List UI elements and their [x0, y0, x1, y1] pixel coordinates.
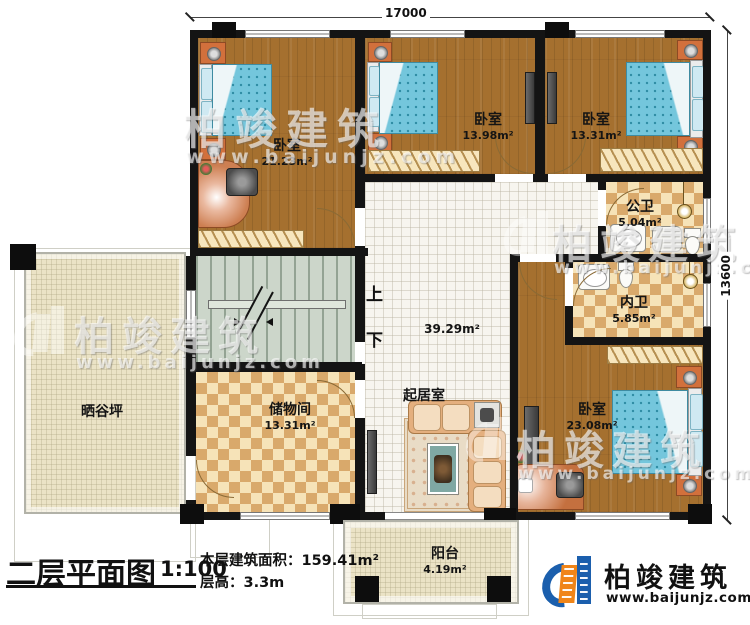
floor-height-line: 层高：3.3m: [200, 571, 284, 592]
column: [688, 504, 712, 524]
table-centerpiece: [434, 455, 452, 483]
room-name: 卧室: [428, 112, 548, 129]
floor-height-value: 3.3m: [244, 575, 285, 591]
room-label-balcony: 阳台 4.19m²: [405, 546, 485, 576]
dimension-top-value: 17000: [382, 6, 430, 20]
wall: [586, 174, 710, 182]
window: [245, 30, 330, 38]
stair-arrow-icon: [266, 318, 273, 326]
room-name: 内卫: [574, 295, 694, 312]
nightstand: [676, 366, 702, 388]
balcony-door-opening: [385, 512, 497, 520]
title-underline: [6, 585, 196, 588]
wall: [565, 306, 573, 337]
watermark-logo-icon: [506, 206, 552, 266]
room-label-living: 起居室: [384, 388, 464, 405]
column: [545, 22, 569, 38]
wall: [533, 174, 548, 182]
wall: [535, 38, 545, 174]
floor-height-label: 层高：: [200, 575, 244, 591]
wall: [186, 256, 196, 290]
room-label-bedroom-top-mid: 卧室 13.98m²: [428, 112, 548, 142]
sofa-cushion: [413, 404, 441, 431]
stairs-up-label: 上: [366, 280, 383, 305]
floor-area-label: 本层建筑面积：: [200, 553, 302, 569]
room-label-terrace: 晒谷坪: [52, 404, 152, 421]
room-area: 13.31m²: [230, 419, 350, 432]
wall: [365, 174, 495, 182]
room-area: 4.19m²: [405, 563, 485, 576]
nightstand: [200, 42, 226, 64]
room-area: 13.98m²: [428, 129, 548, 142]
dimension-line-top: [190, 17, 710, 18]
floor-area-value: 159.41m²: [302, 553, 379, 569]
column: [212, 22, 236, 38]
watermark-logo-icon: [468, 412, 514, 472]
floor-plan-canvas: 卧室 21.23m² 卧室 13.98m² 卧室 13.31m² 公卫 5.04…: [0, 0, 750, 625]
floor-area-line: 本层建筑面积：159.41m²: [200, 549, 379, 570]
wall: [565, 337, 710, 345]
window: [240, 512, 330, 520]
room-label-bedroom-top-right: 卧室 13.31m²: [536, 112, 656, 142]
nightstand: [677, 40, 703, 60]
dimension-right-value: 13600: [719, 252, 733, 300]
sofa-cushion: [442, 404, 470, 431]
watermark-website: www.baijunjz.com: [76, 352, 324, 373]
column: [180, 504, 204, 524]
room-name: 储物间: [230, 402, 350, 419]
wall: [190, 248, 368, 256]
room-area: 5.85m²: [574, 312, 694, 325]
stairs-down-label: 下: [366, 326, 383, 351]
wall: [355, 418, 365, 512]
room-name: 卧室: [536, 112, 656, 129]
column: [10, 244, 36, 270]
column: [355, 576, 379, 602]
watermark-logo-icon: [16, 300, 68, 366]
watermark-logo-icon: [128, 92, 180, 158]
tv: [367, 430, 377, 494]
window: [575, 512, 670, 520]
wardrobe: [198, 230, 304, 248]
room-terrace-floor: [24, 252, 186, 514]
watermark-website: www.baijunjz.com: [518, 464, 750, 484]
column: [487, 576, 511, 602]
computer-monitor: [226, 168, 258, 196]
roof-outline-balcony-lower: [362, 604, 497, 619]
room-area-living: 39.29m²: [412, 322, 492, 336]
wardrobe: [600, 148, 703, 172]
window: [390, 30, 465, 38]
company-logo-icon: [543, 552, 599, 610]
watermark-website: www.baijunjz.com: [186, 146, 460, 168]
wall: [355, 246, 365, 342]
nightstand: [368, 42, 392, 62]
company-website: www.baijunjz.com: [606, 590, 750, 606]
room-label-private-bath: 内卫 5.85m²: [574, 295, 694, 325]
sofa-cushion: [473, 486, 502, 508]
room-name: 卧室: [532, 402, 652, 419]
room-name: 阳台: [405, 546, 485, 563]
room-label-storage: 储物间 13.31m²: [230, 402, 350, 432]
window: [703, 283, 711, 327]
room-area: 13.31m²: [536, 129, 656, 142]
wardrobe: [607, 346, 703, 364]
window: [575, 30, 665, 38]
wall: [598, 182, 606, 190]
